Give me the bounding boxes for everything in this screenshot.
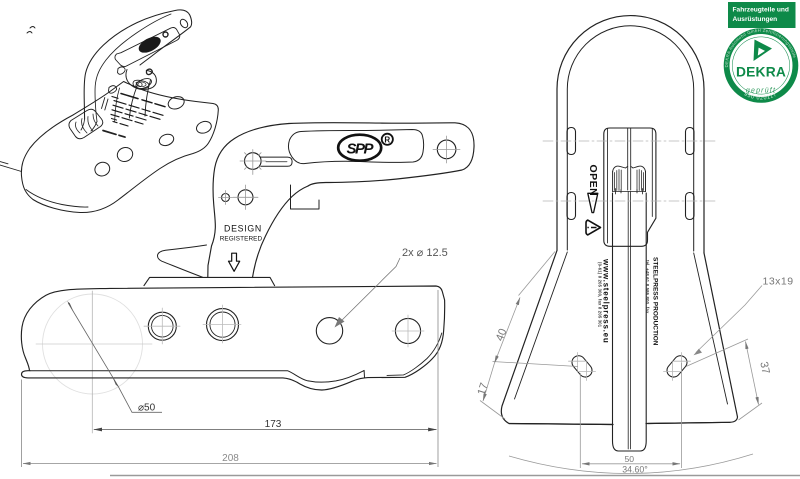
svg-text:www.steelpress.eu: www.steelpress.eu xyxy=(602,258,611,343)
svg-text:OPEN: OPEN xyxy=(587,165,599,197)
svg-text:50: 50 xyxy=(625,454,635,464)
svg-text:DESIGN: DESIGN xyxy=(224,224,262,234)
svg-text:Fahrzeugteile und: Fahrzeugteile und xyxy=(733,7,789,14)
svg-text:37: 37 xyxy=(757,361,771,375)
svg-text:STEELPRESS PRODUCTION: STEELPRESS PRODUCTION xyxy=(652,257,659,346)
svg-text:DEKRA: DEKRA xyxy=(736,65,786,80)
svg-text:REGISTERED: REGISTERED xyxy=(220,236,263,243)
svg-text:SPP: SPP xyxy=(346,141,374,158)
svg-text:13x19: 13x19 xyxy=(763,276,794,288)
svg-text:Ausrüstungen: Ausrüstungen xyxy=(733,16,778,23)
svg-text:208: 208 xyxy=(222,453,239,464)
svg-text:2x ⌀ 12.5: 2x ⌀ 12.5 xyxy=(402,247,448,259)
svg-text:⌀50: ⌀50 xyxy=(138,403,156,414)
svg-text:geprüft: geprüft xyxy=(746,88,776,95)
svg-text:173: 173 xyxy=(265,419,282,430)
svg-text:tel. +48 61 8 586 800 fax: tel. +48 61 8 586 800 fax xyxy=(645,260,650,314)
svg-text:34.60°: 34.60° xyxy=(622,465,648,475)
svg-text:R: R xyxy=(384,136,390,145)
